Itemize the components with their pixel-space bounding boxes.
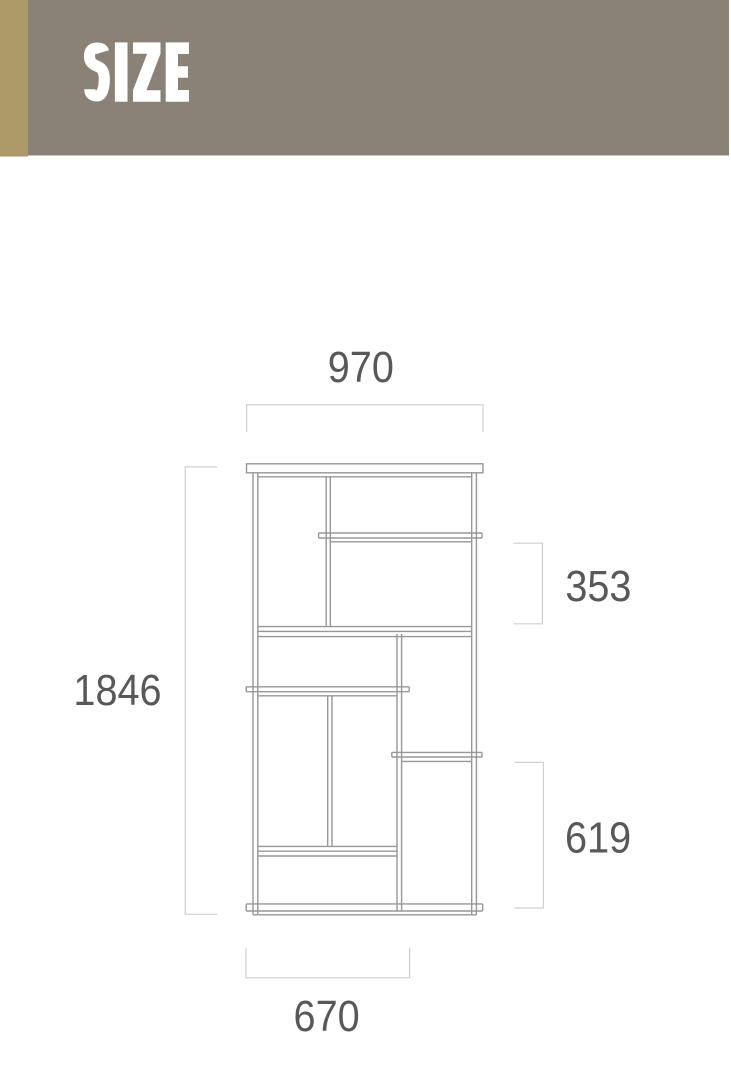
svg-text:619: 619 — [565, 813, 631, 862]
svg-text:670: 670 — [294, 991, 360, 1040]
svg-text:1846: 1846 — [73, 665, 161, 714]
svg-text:353: 353 — [565, 561, 631, 610]
svg-text:970: 970 — [328, 342, 394, 391]
